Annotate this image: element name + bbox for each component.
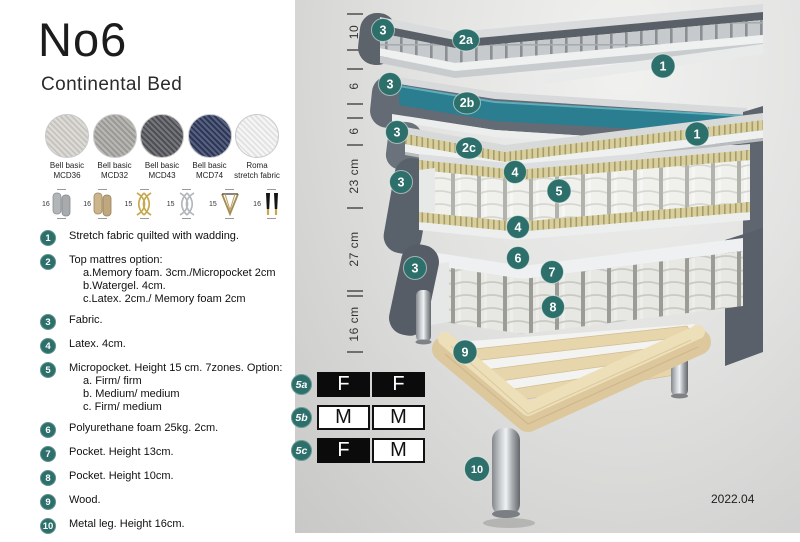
fabric-swatch: Bell basic MCD43 <box>139 114 185 180</box>
spec-text: Fabric. <box>69 314 103 330</box>
fabric-swatch: Bell basic MCD74 <box>187 114 233 180</box>
spec-text: Top mattres option: <box>69 254 163 266</box>
fabric-swatch-circle <box>45 114 89 158</box>
cylinder-wood-leg-icon <box>92 188 113 220</box>
badge-micropocket: 5 <box>547 179 571 203</box>
spec-item-10: 10 Metal leg. Height 16cm. <box>40 518 294 534</box>
svg-text:4: 4 <box>515 220 522 234</box>
spec-item-3: 3 Fabric. <box>40 314 294 330</box>
spec-sub-b: b. Medium/ medium <box>83 388 282 401</box>
badge-stretch-fabric-1: 1 <box>651 54 675 78</box>
spec-sub-b: b.Watergel. 4cm. <box>83 280 276 293</box>
spec-item-7: 7 Pocket. Height 13cm. <box>40 446 294 462</box>
fabric-code: MCD32 <box>101 171 128 180</box>
spec-sub-a: a. Firm/ firm <box>83 375 282 388</box>
spec-number-badge: 10 <box>40 518 56 534</box>
badge-latex-bottom: 4 <box>507 216 530 239</box>
spec-item-6: 6 Polyurethane foam 25kg. 2cm. <box>40 422 294 438</box>
leg-options: 16 16 15 15 15 <box>42 188 282 220</box>
fabric-code: stretch fabric <box>234 171 280 180</box>
badge-pocket-10: 8 <box>542 296 565 319</box>
spec-text: Micropocket. Height 15 cm. 7zones. Optio… <box>69 362 282 374</box>
wood-base <box>445 324 705 424</box>
fabric-name: Bell basic <box>97 161 131 170</box>
leg-option: 16 <box>83 188 113 220</box>
badge-foam: 6 <box>507 247 530 270</box>
leg-height: 15 <box>124 201 132 208</box>
leg-option: 16 <box>42 188 72 220</box>
svg-text:7: 7 <box>549 265 556 279</box>
spec-item-8: 8 Pocket. Height 10cm. <box>40 470 294 486</box>
spec-text: Metal leg. Height 16cm. <box>69 518 185 534</box>
leg-option: 16 <box>253 188 282 220</box>
spec-number-badge: 1 <box>40 230 56 246</box>
leg-height: 16 <box>42 201 50 208</box>
firmness-table: 5a F F 5b M M 5c F M <box>291 372 425 471</box>
spec-text: Pocket. Height 10cm. <box>69 470 174 486</box>
spec-item-5: 5 Micropocket. Height 15 cm. 7zones. Opt… <box>40 362 294 414</box>
firmness-cell: M <box>372 405 425 430</box>
svg-text:1: 1 <box>660 59 667 73</box>
top-mattress-layer <box>356 4 763 78</box>
spec-sub-a: a.Memory foam. 3cm./Micropocket 2cm <box>83 267 276 280</box>
cylinder-gray-leg-icon <box>51 188 72 220</box>
leg-height: 16 <box>83 201 91 208</box>
firmness-badge: 5b <box>291 407 312 428</box>
fabric-swatch-circle <box>140 114 184 158</box>
leg-height: 16 <box>253 201 261 208</box>
spec-number-badge: 3 <box>40 314 56 330</box>
leg-height: 15 <box>167 201 175 208</box>
fabric-code: MCD36 <box>53 171 80 180</box>
svg-text:3: 3 <box>398 175 405 189</box>
dim-6a: 6 <box>347 82 361 89</box>
badge-wood: 9 <box>453 340 477 364</box>
spec-text: Pocket. Height 13cm. <box>69 446 174 462</box>
dim-23cm: 23 cm <box>347 158 361 193</box>
spec-number-badge: 2 <box>40 254 56 270</box>
spec-sub-c: c. Firm/ medium <box>83 401 282 414</box>
spec-text: Stretch fabric quilted with wadding. <box>69 230 239 246</box>
badge-option-2c: 2c <box>456 137 483 159</box>
tapered-black-leg-icon <box>262 188 282 220</box>
dim-16cm: 16 cm <box>347 306 361 341</box>
svg-text:6: 6 <box>515 251 522 265</box>
firmness-badge: 5a <box>291 374 312 395</box>
badge-fabric-top: 3 <box>372 19 395 42</box>
front-metal-leg <box>483 428 535 528</box>
svg-text:8: 8 <box>550 300 557 314</box>
fabric-name: Bell basic <box>192 161 226 170</box>
badge-option-2b: 2b <box>454 92 481 114</box>
page-title: No6 <box>38 12 127 67</box>
firmness-cell: F <box>372 372 425 397</box>
svg-text:2c: 2c <box>462 141 476 155</box>
firmness-cell: M <box>317 405 370 430</box>
spec-item-1: 1 Stretch fabric quilted with wadding. <box>40 230 294 246</box>
badge-fabric-teal: 3 <box>379 73 402 96</box>
spec-item-4: 4 Latex. 4cm. <box>40 338 294 354</box>
spec-number-badge: 5 <box>40 362 56 378</box>
svg-text:4: 4 <box>512 165 519 179</box>
fabric-name: Bell basic <box>145 161 179 170</box>
spec-number-badge: 4 <box>40 338 56 354</box>
badge-pocket-13: 7 <box>541 261 564 284</box>
badge-stretch-fabric-2: 1 <box>685 122 709 146</box>
version-label: 2022.04 <box>711 492 754 506</box>
dim-27cm: 27 cm <box>347 231 361 266</box>
firmness-cell: F <box>317 372 370 397</box>
spec-text: Wood. <box>69 494 101 510</box>
firmness-row-5b: 5b M M <box>291 405 425 430</box>
svg-text:1: 1 <box>694 127 701 141</box>
svg-text:3: 3 <box>380 23 387 37</box>
dim-6b: 6 <box>347 127 361 134</box>
svg-text:3: 3 <box>387 77 394 91</box>
leg-option: 15 <box>209 188 242 220</box>
hairpin-leg-icon <box>218 188 242 220</box>
svg-text:3: 3 <box>394 125 401 139</box>
badge-fabric-mid: 3 <box>390 171 413 194</box>
fabric-swatch-circle <box>93 114 137 158</box>
svg-text:2b: 2b <box>460 96 475 110</box>
fabric-swatch-circle <box>235 114 279 158</box>
leg-option: 15 <box>124 188 155 220</box>
page-subtitle: Continental Bed <box>41 74 182 96</box>
svg-text:5: 5 <box>556 184 563 198</box>
spec-sub-c: c.Latex. 2cm./ Memory foam 2cm <box>83 293 276 306</box>
firmness-cell: F <box>317 438 370 463</box>
firmness-cell: M <box>372 438 425 463</box>
spec-item-2: 2 Top mattres option: a.Memory foam. 3cm… <box>40 254 294 306</box>
spec-number-badge: 9 <box>40 494 56 510</box>
dimension-labels: 10 6 6 23 cm 27 cm 16 cm <box>347 25 361 342</box>
spec-number-badge: 8 <box>40 470 56 486</box>
spec-text: Polyurethane foam 25kg. 2cm. <box>69 422 218 438</box>
fabric-swatches: Bell basic MCD36 Bell basic MCD32 Bell b… <box>44 114 280 180</box>
leg-option: 15 <box>167 188 198 220</box>
firmness-badge: 5c <box>291 440 312 461</box>
fabric-name: Bell basic <box>50 161 84 170</box>
svg-text:10: 10 <box>471 464 483 476</box>
fabric-code: MCD43 <box>148 171 175 180</box>
fabric-name: Roma <box>246 161 267 170</box>
twist-silver-leg-icon <box>176 188 198 220</box>
dim-10: 10 <box>347 25 361 39</box>
firmness-row-5c: 5c F M <box>291 438 425 463</box>
fabric-swatch: Roma stretch fabric <box>234 114 280 180</box>
svg-text:9: 9 <box>462 345 469 359</box>
badge-fabric-lower: 3 <box>404 257 427 280</box>
fabric-swatch: Bell basic MCD32 <box>92 114 138 180</box>
leg-height: 15 <box>209 201 217 208</box>
twist-gold-leg-icon <box>133 188 155 220</box>
fabric-swatch: Bell basic MCD36 <box>44 114 90 180</box>
svg-text:2a: 2a <box>459 33 474 47</box>
fabric-swatch-circle <box>188 114 232 158</box>
mid-mattress-layer <box>381 142 763 258</box>
badge-metal-leg: 10 <box>465 457 490 482</box>
badge-latex-top: 4 <box>504 161 527 184</box>
svg-text:3: 3 <box>412 261 419 275</box>
spec-item-9: 9 Wood. <box>40 494 294 510</box>
spec-text: Latex. 4cm. <box>69 338 126 354</box>
fabric-code: MCD74 <box>196 171 223 180</box>
info-panel: No6 Continental Bed Bell basic MCD36 Bel… <box>0 0 295 533</box>
badge-fabric-2c: 3 <box>386 121 409 144</box>
spec-number-badge: 7 <box>40 446 56 462</box>
badge-option-2a: 2a <box>453 29 480 51</box>
spec-list: 1 Stretch fabric quilted with wadding. 2… <box>40 230 294 542</box>
firmness-row-5a: 5a F F <box>291 372 425 397</box>
spec-number-badge: 6 <box>40 422 56 438</box>
